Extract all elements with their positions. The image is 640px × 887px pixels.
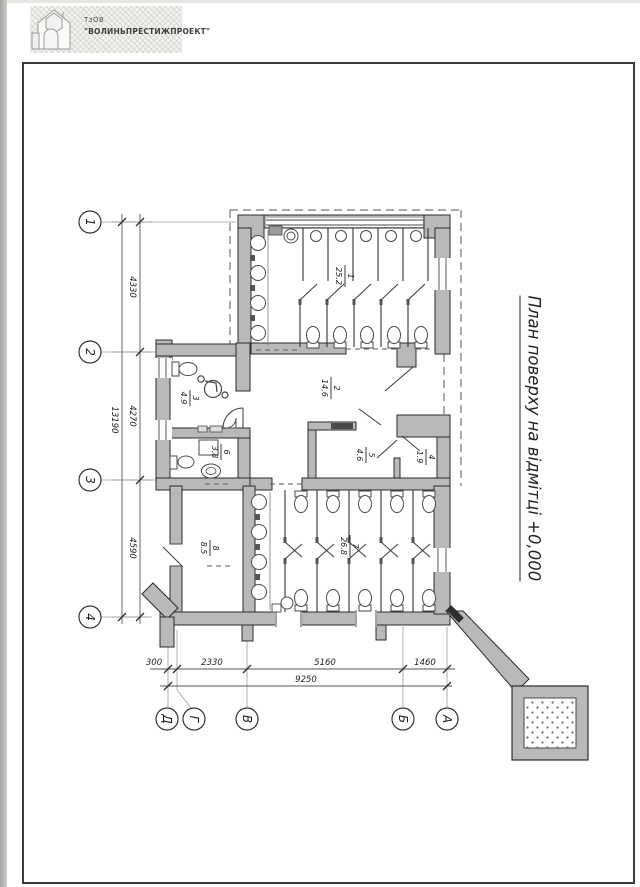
counter-items [198,426,222,432]
dim-left-total: 13190 [109,406,119,433]
toilet-icon [307,327,320,349]
svg-text:25.2: 25.2 [334,267,343,285]
toilet-icon [423,491,436,513]
room-label-5: 5 4.6 [355,447,376,463]
room-label-8: 8 8.5 [199,540,220,556]
svg-text:5: 5 [367,452,376,457]
toilet-icon [327,491,340,513]
axis-row-2: 2 [83,348,97,356]
svg-text:4.9: 4.9 [179,392,188,405]
room-label-4: 4 1.9 [415,449,436,465]
sink-dividers [255,514,260,580]
pit-structure [446,605,588,760]
toilet-icon [295,491,308,513]
svg-text:6: 6 [222,449,231,454]
walls [142,215,450,647]
sink-icon [202,464,221,478]
axis-col-d: Д [160,713,174,723]
axis-row-4: 4 [83,613,97,621]
room-label-2: 2 14.6 [320,377,341,399]
corner-sink-icon [226,418,236,428]
dim-bottom-3: 5160 [314,658,336,668]
dim-bottom-total: 9250 [295,675,317,685]
dim-bottom-2: 2330 [201,658,223,668]
axis-row-1: 1 [83,218,97,226]
dim-bottom-4: 1460 [414,658,436,668]
floor-drain-icon [281,597,293,609]
svg-text:7: 7 [351,543,360,549]
svg-text:1.9: 1.9 [415,451,424,464]
toilet-icon [359,491,372,513]
svg-text:8.5: 8.5 [199,542,208,555]
toilet-icon [415,327,428,349]
dim-left-2: 4270 [127,405,137,427]
toilet-icon [178,456,194,468]
svg-text:3.8: 3.8 [210,446,219,459]
toilet-icon-accessible [179,363,197,376]
leader-lines [402,436,420,451]
toilet-icon [295,590,308,612]
toilet-icon [391,491,404,513]
toilet-icon [361,327,374,349]
svg-text:4.6: 4.6 [355,449,364,462]
axis-col-b: Б [396,715,410,723]
svg-text:26.8: 26.8 [339,537,348,555]
svg-text:14.6: 14.6 [320,379,329,397]
room-label-3: 3 4.9 [179,390,200,406]
axis-row-3: 3 [83,476,97,484]
room-labels: 1 25.2 2 14.6 3 4.9 4 1.9 5 4.6 6 3.8 [179,265,436,557]
toilet-icon [359,590,372,612]
axis-col-a: А [440,714,454,723]
dim-left-1: 4330 [127,276,137,298]
toilet-icon [391,590,404,612]
fixtures-room-1 [250,226,435,348]
toilet-icon [423,590,436,612]
dim-bottom-1: 300 [146,658,162,668]
svg-text:2: 2 [332,385,341,390]
dimensions-left: 4330 4270 4590 13190 [109,214,152,624]
room-label-1: 1 25.2 [334,265,355,287]
toilet-icon [327,590,340,612]
stall-doors-room-1 [300,284,425,300]
toilet-icon [334,327,347,349]
toilet-icon [388,327,401,349]
svg-text:1: 1 [346,273,355,278]
axis-col-v: В [240,715,254,723]
svg-text:3: 3 [191,395,200,400]
hand-dryer-icon [269,226,282,235]
svg-text:8: 8 [211,545,220,550]
svg-text:4: 4 [427,454,436,459]
dimensions-bottom: 300 2330 5160 1460 9250 [146,658,455,690]
dim-left-3: 4590 [127,537,137,559]
room-label-6: 6 3.8 [210,444,231,460]
floor-plan: 4330 4270 4590 13190 300 2330 5160 1460 … [0,0,640,887]
wheelchair-icon [198,376,228,398]
fixtures-rooms-3-6 [170,362,236,478]
